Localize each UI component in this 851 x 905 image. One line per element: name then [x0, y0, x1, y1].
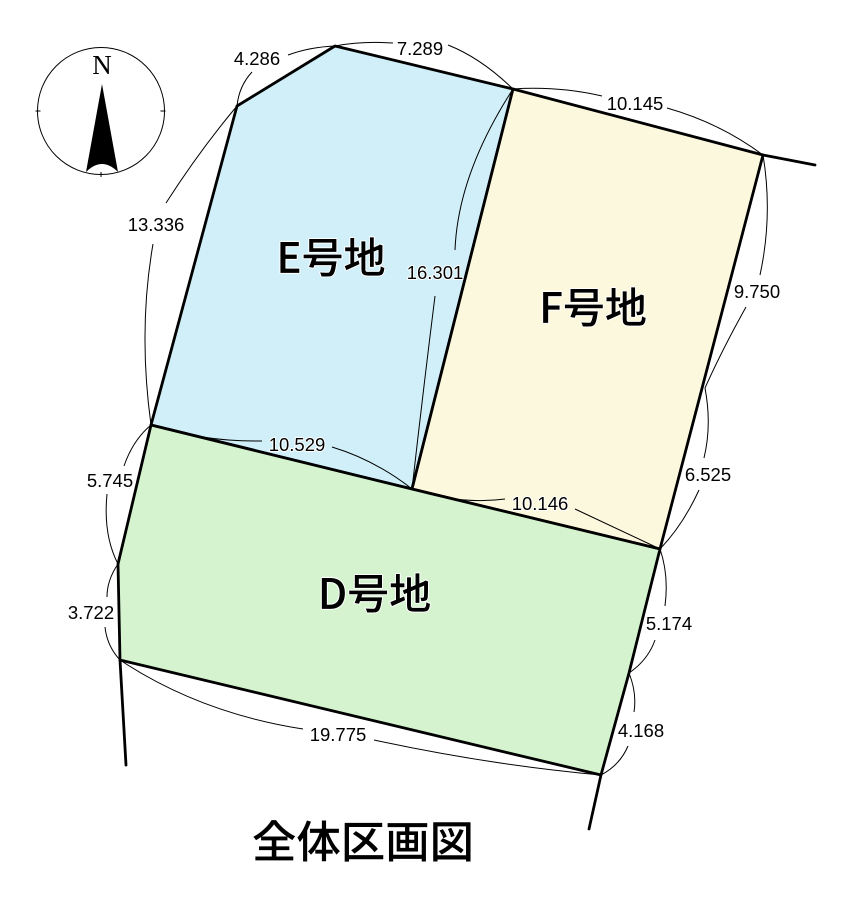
svg-text:7.289: 7.289 — [397, 38, 443, 59]
svg-text:13.336: 13.336 — [128, 214, 185, 235]
svg-text:4.168: 4.168 — [618, 720, 664, 741]
svg-text:4.286: 4.286 — [234, 48, 280, 69]
svg-text:16.301: 16.301 — [407, 262, 464, 283]
svg-text:3.722: 3.722 — [68, 602, 114, 623]
svg-text:9.750: 9.750 — [734, 281, 780, 302]
svg-text:5.174: 5.174 — [646, 613, 692, 634]
svg-text:6.525: 6.525 — [685, 464, 731, 485]
svg-text:19.775: 19.775 — [310, 724, 367, 745]
svg-text:5.745: 5.745 — [87, 470, 133, 491]
svg-text:10.529: 10.529 — [269, 434, 326, 455]
svg-text:10.145: 10.145 — [607, 93, 664, 114]
svg-text:10.146: 10.146 — [512, 493, 569, 514]
svg-text:N: N — [92, 50, 112, 80]
